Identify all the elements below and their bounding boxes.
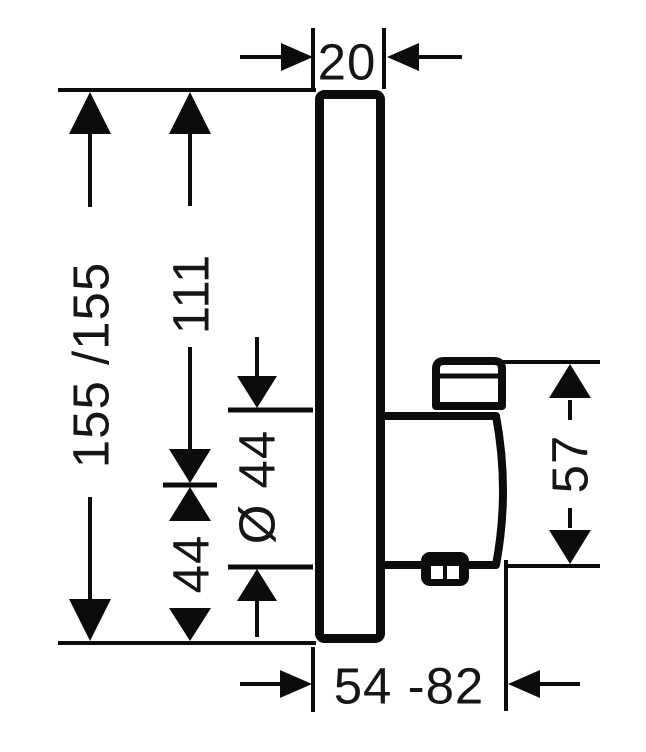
dim-text-axis-to-bottom: 44: [163, 535, 220, 594]
arrow-left-icon: [387, 43, 419, 71]
handle-clip-cell-right: [447, 566, 459, 579]
technical-drawing-page: 20 155 /155 111 44 Ø 44 57: [0, 0, 646, 752]
arrow-down-icon: [549, 530, 591, 564]
dim-text-top-to-axis: 111: [163, 254, 220, 335]
dim-text-installation-depth: 54 -82: [334, 658, 485, 715]
dimension-handle-diameter: Ø 44: [229, 337, 286, 637]
arrow-up-icon: [237, 569, 277, 601]
handle-cap: [434, 361, 504, 406]
dimension-handle-height: 57: [542, 364, 599, 564]
handle-body: [383, 416, 503, 565]
arrow-up-icon: [69, 92, 111, 134]
arrow-left-icon: [508, 670, 540, 698]
dimension-plate-height: 155 /155: [63, 92, 120, 641]
handle-clip: [421, 552, 469, 586]
arrow-right-icon: [281, 43, 313, 71]
handle-clip-outline: [421, 552, 469, 586]
arrow-up-icon: [549, 364, 591, 398]
handle-clip-cell-left: [431, 566, 443, 579]
arrow-right-icon: [280, 670, 312, 698]
fixture-side-view: [320, 95, 505, 639]
dim-text-handle-diameter: Ø 44: [229, 430, 286, 545]
arrow-down-icon: [69, 599, 111, 641]
dim-text-plate-height: 155 /155: [63, 262, 120, 469]
handle-cap-outline: [436, 361, 502, 406]
arrow-up-icon: [169, 487, 211, 521]
dim-text-plate-depth: 20: [318, 34, 377, 91]
dimension-drawing: 20 155 /155 111 44 Ø 44 57: [0, 0, 646, 752]
dimension-axis-to-bottom: 44: [163, 487, 220, 641]
dimension-plate-depth: 20: [240, 34, 462, 91]
arrow-down-icon: [237, 376, 277, 408]
dim-text-handle-height: 57: [542, 435, 599, 494]
wall-plate: [320, 95, 381, 639]
arrow-down-icon: [169, 449, 211, 483]
dimension-installation-depth: 54 -82: [240, 658, 580, 715]
arrow-down-icon: [169, 608, 211, 641]
arrow-up-icon: [169, 92, 211, 134]
dimension-top-to-axis: 111: [163, 92, 220, 483]
